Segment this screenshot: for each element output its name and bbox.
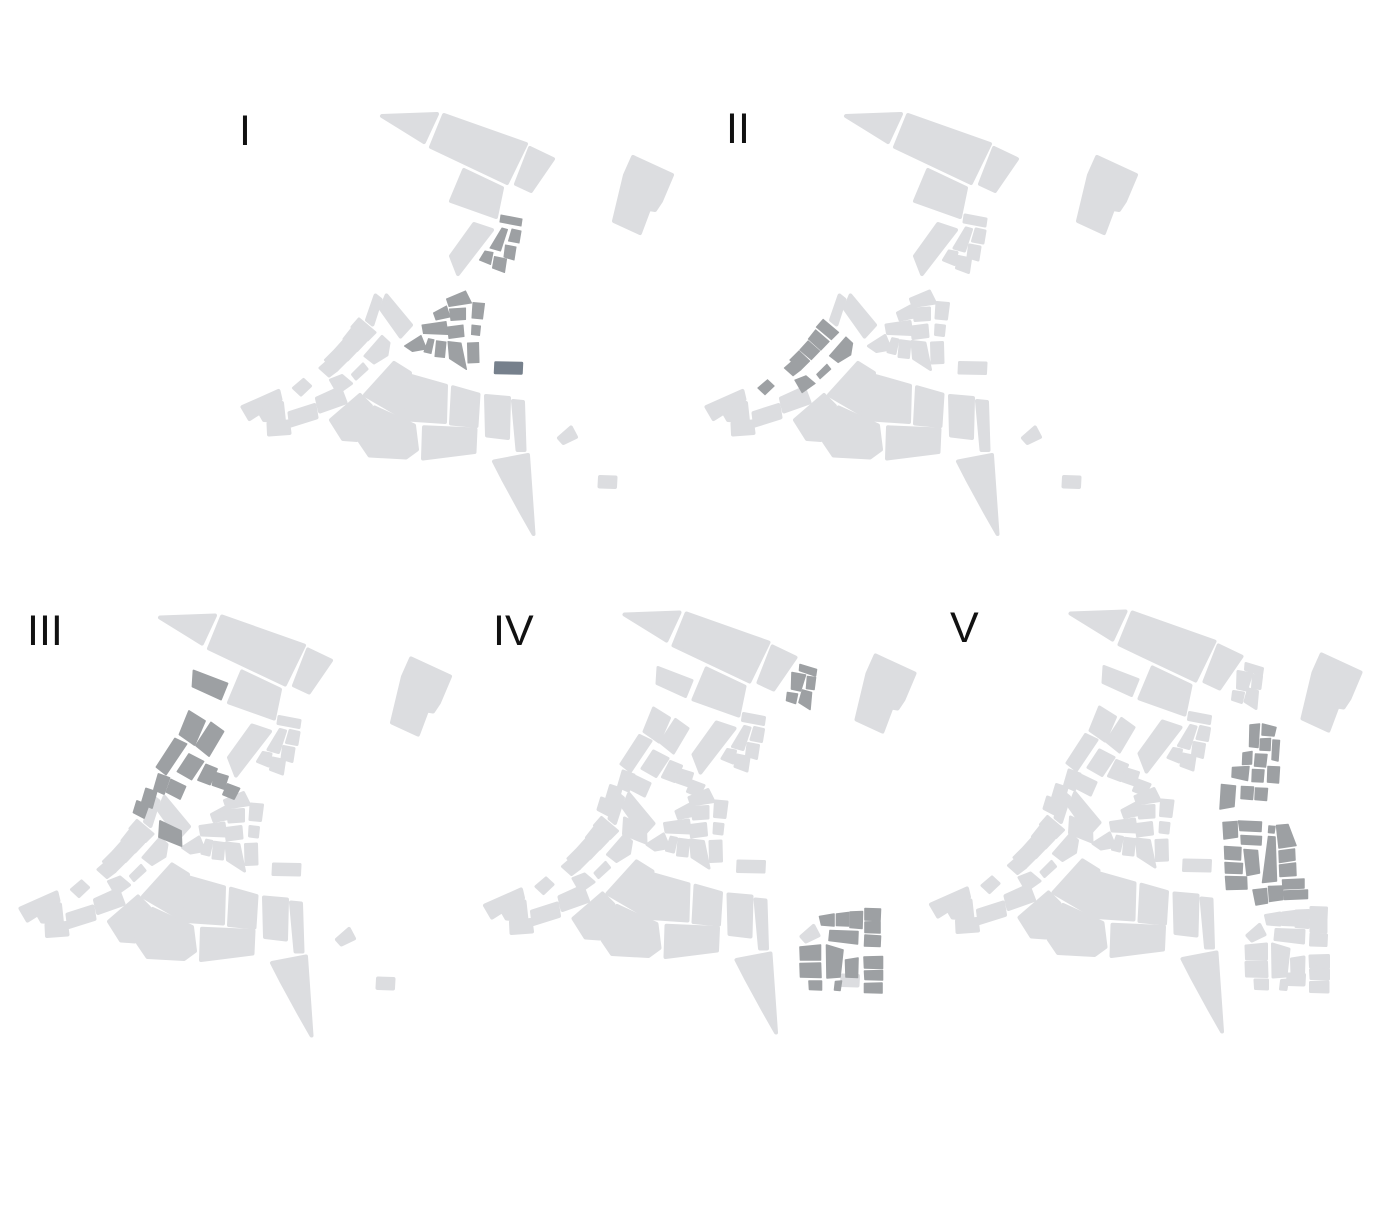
svg-text:IV: IV [493,607,534,655]
svg-text:II: II [726,105,750,153]
svg-text:III: III [27,607,63,655]
svg-text:V: V [950,604,979,652]
svg-text:I: I [239,107,251,155]
